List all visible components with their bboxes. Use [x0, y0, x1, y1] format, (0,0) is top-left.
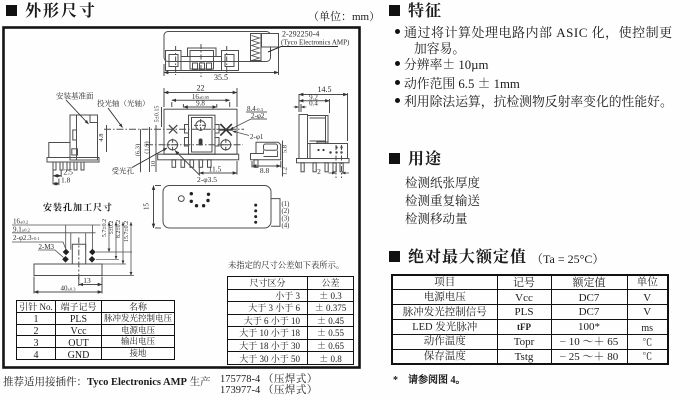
svg-text:投光轴（光轴）: 投光轴（光轴） [97, 98, 150, 109]
svg-text:5.7±0.2: 5.7±0.2 [102, 219, 108, 237]
svg-text:40±0.3: 40±0.3 [60, 285, 76, 293]
svg-text:(3): (3) [282, 215, 290, 222]
svg-text:(6.3): (6.3) [135, 144, 142, 156]
svg-text:(2): (2) [282, 208, 290, 215]
svg-text:(1.9): (1.9) [144, 141, 151, 153]
svg-text:11.5: 11.5 [209, 165, 222, 174]
svg-text:1.8: 1.8 [61, 176, 71, 185]
svg-text:10: 10 [150, 161, 157, 168]
svg-text:2-φ2: 2-φ2 [251, 112, 265, 120]
svg-text:安装基准面: 安装基准面 [56, 91, 94, 102]
svg-text:5±0.2: 5±0.2 [109, 221, 115, 235]
svg-text:5±0.15: 5±0.15 [155, 106, 161, 123]
svg-text:9.8: 9.8 [196, 100, 205, 108]
svg-text:2-φ2.3+0.1: 2-φ2.3+0.1 [13, 234, 40, 242]
svg-text:安装孔加工尺寸: 安装孔加工尺寸 [43, 201, 113, 214]
svg-text:15.7±0.2: 15.7±0.2 [124, 221, 130, 242]
svg-text:16±0.2: 16±0.2 [13, 218, 28, 226]
svg-text:13: 13 [83, 276, 91, 285]
svg-text:35.5: 35.5 [214, 73, 228, 82]
svg-text:22: 22 [197, 84, 205, 93]
svg-text:受光孔: 受光孔 [112, 166, 135, 177]
svg-text:9.1±0.2: 9.1±0.2 [13, 226, 30, 234]
svg-text:(1): (1) [282, 201, 290, 208]
svg-text:8.8: 8.8 [260, 166, 270, 175]
svg-text:8.2±0.2: 8.2±0.2 [116, 220, 122, 238]
svg-text:(Tyco Electronics AMP): (Tyco Electronics AMP) [281, 39, 350, 47]
svg-text:2-φ1: 2-φ1 [250, 133, 264, 141]
svg-text:2-φ3.5: 2-φ3.5 [197, 175, 217, 184]
svg-text:(4): (4) [282, 223, 290, 230]
svg-text:1.2: 1.2 [282, 167, 289, 175]
svg-text:15: 15 [143, 203, 151, 211]
svg-text:2: 2 [317, 167, 321, 176]
svg-text:14.5: 14.5 [318, 85, 332, 94]
svg-text:4.8: 4.8 [98, 133, 105, 141]
svg-text:2-292250-4: 2-292250-4 [282, 30, 319, 39]
svg-text:0.4: 0.4 [309, 100, 318, 108]
svg-text:5.8: 5.8 [282, 145, 289, 153]
